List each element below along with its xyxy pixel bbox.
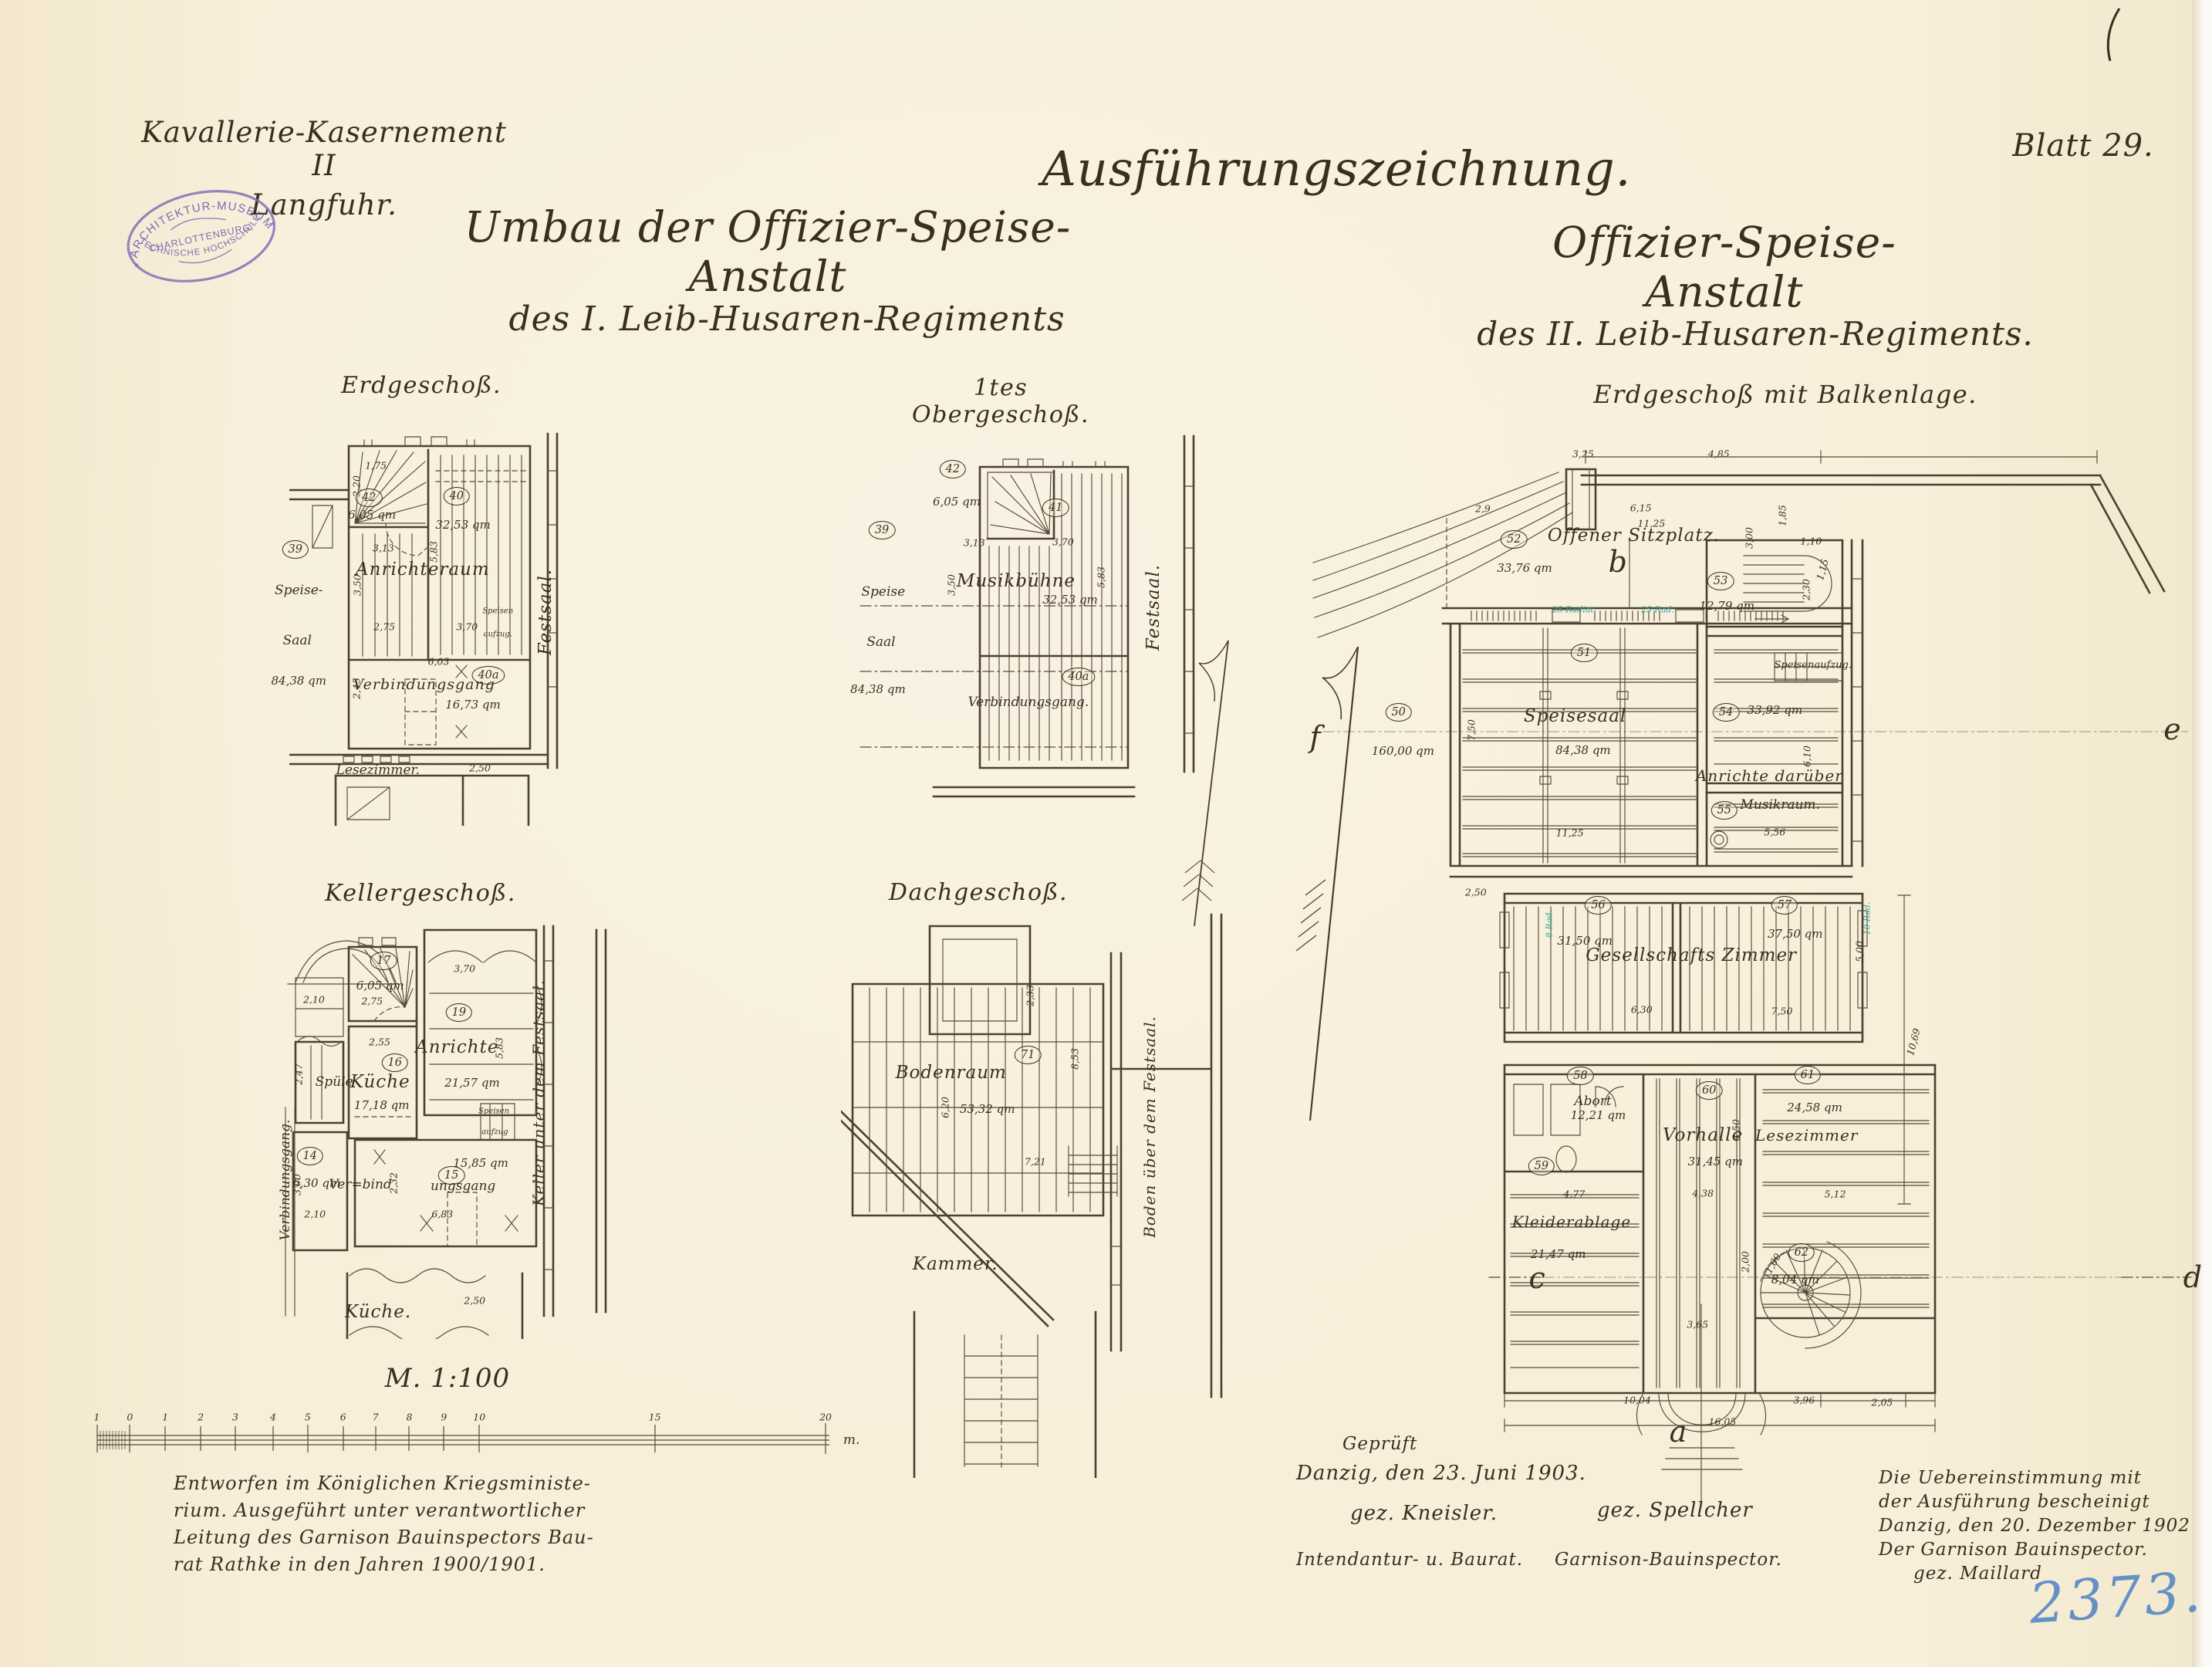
plan-label: Speisesaal	[1524, 706, 1626, 726]
project-title-right-line2: des II. Leib-Husaren-Regiments.	[1458, 315, 2052, 353]
scale-bar: 10123456789101520m.	[77, 1366, 864, 1459]
dimension-label: 3,25	[1572, 448, 1594, 460]
dimension-label: 20	[819, 1412, 832, 1423]
dimension-label: 2,75	[361, 996, 383, 1007]
dimension-label: 4,38	[1692, 1187, 1714, 1199]
dimension-label: 5,83	[494, 1037, 505, 1059]
room-number: 55	[1711, 801, 1738, 820]
dimension-label: 2,00	[1740, 1251, 1751, 1273]
plan-label: Keller unter dem Festsaal.	[529, 979, 548, 1206]
dimension-label: 4,50	[1730, 1119, 1741, 1141]
note-designed-line: Entworfen im Königlichen Kriegsministe-	[174, 1470, 575, 1497]
plan-label: Verbindungsgang.	[968, 695, 1089, 710]
dimension-label: 4	[270, 1412, 276, 1423]
checked-heading: Geprüft	[1342, 1434, 1417, 1454]
room-number: 59	[1528, 1157, 1555, 1175]
floor-plan-dachgeschoss-labels: 71Bodenraum2,338,536,2053,32 qm7,21Boden…	[841, 884, 1312, 1478]
dimension-label: 4,85	[1708, 448, 1730, 460]
room-number: 41	[1042, 499, 1069, 517]
plan-label: 6,05 qm	[933, 495, 981, 509]
plan-label: 84,38 qm	[271, 674, 326, 688]
dimension-label: 10,04	[1623, 1395, 1651, 1406]
plan-label: Verbindungsgang	[353, 676, 495, 693]
room-number: 51	[1571, 644, 1597, 662]
plan-label: Lesezimmer.	[336, 762, 420, 778]
room-number: 19	[446, 1003, 472, 1022]
dimension-label: 2,50	[469, 762, 491, 774]
project-title-right-line1: Offizier-Speise-Anstalt	[1489, 218, 1960, 316]
plan-label: Lesezimmer	[1755, 1126, 1858, 1145]
dimension-label: 8	[406, 1412, 412, 1423]
floor-plan-dachgeschoss: 71Bodenraum2,338,536,2053,32 qm7,21Boden…	[841, 884, 1312, 1478]
site-line1: Kavallerie-Kasernement II	[131, 116, 517, 182]
plan-label: d	[2183, 1260, 2202, 1294]
plan-label: Speise	[861, 584, 905, 600]
plan-label: Festsaal.	[535, 569, 556, 655]
dimension-label: 11,25	[1556, 827, 1584, 839]
plan-label: Gesellschafts Zimmer	[1586, 945, 1797, 965]
dimension-label: 3,70	[456, 620, 478, 632]
plan-label: Musikraum.	[1740, 797, 1820, 813]
plan-label: Küche.	[345, 1302, 411, 1322]
dimension-label: 2,50	[1465, 887, 1487, 898]
floor-plan-kellergeschoss-labels: 176,05 qm2,752,103,7019Anrichte21,57 qm5…	[282, 884, 787, 1339]
dimension-label: 3,00	[1743, 527, 1754, 549]
dimension-label: 6,10	[1801, 746, 1812, 767]
room-number: 52	[1501, 530, 1527, 549]
plan-label: 32,53 qm	[1042, 593, 1098, 607]
dimension-label: 3,50	[946, 574, 957, 596]
dimension-label: 10	[473, 1412, 485, 1423]
dimension-label: 5,56	[1764, 827, 1785, 838]
plan-label: 6,05 qm	[356, 979, 404, 992]
plan-label: Boden über dem Festsaal.	[1140, 1016, 1159, 1238]
dimension-label: 2,10	[303, 993, 325, 1005]
dimension-label: 5	[305, 1412, 311, 1423]
room-number: 60	[1696, 1081, 1722, 1100]
note-designed-line: rium. Ausgeführt unter verantwortlicher	[174, 1497, 575, 1524]
dimension-label: 8,53	[1069, 1048, 1081, 1070]
dimension-label: 2,10	[304, 1208, 326, 1219]
room-number: 42	[940, 460, 966, 478]
dimension-label: 1,75	[365, 460, 387, 472]
room-number: 16	[381, 1053, 407, 1072]
plan-label: Anrichteraum	[356, 560, 490, 580]
dimension-label: 2,75	[373, 620, 395, 632]
dimension-label: 9	[441, 1412, 447, 1423]
dimension-label: 2,05	[1872, 1397, 1893, 1408]
room-number: 42	[356, 489, 382, 507]
note-designed: Entworfen im Königlichen Kriegsministe- …	[174, 1470, 575, 1578]
dimension-label: 10,69	[1904, 1026, 1923, 1056]
drawing-sheet: Kavallerie-Kasernement II Langfuhr. ARCH…	[0, 0, 2212, 1667]
plan-label: Speisen	[478, 1107, 509, 1116]
plan-title-obergeschoss: 1tes Obergeschoß.	[885, 374, 1116, 428]
dimension-label: 3,00	[292, 1174, 303, 1195]
dimension-label: 6,30	[1631, 1003, 1653, 1015]
note-designed-line: Leitung des Garnison Bauinspectors Bau-	[174, 1524, 575, 1551]
plan-label: Festsaal.	[1143, 564, 1163, 651]
plan-label: Speisenaufzug.	[1775, 660, 1852, 671]
plan-label: m.	[843, 1432, 860, 1448]
drawing-type-title: Ausführungszeichnung.	[1042, 140, 1613, 197]
checked-signature-left: gez. Kneisler.	[1350, 1502, 1498, 1525]
sheet-number: Blatt 29.	[1998, 128, 2168, 164]
floor-plan-balkenlage: 52Offener Sitzplatz.33,76 qm3,254,856,15…	[1312, 432, 2199, 1513]
dimension-label: 2,32	[387, 1172, 399, 1194]
room-number: 62	[1788, 1243, 1815, 1262]
dimension-label: 7,21	[1025, 1156, 1046, 1168]
room-number: 17	[370, 952, 397, 970]
note-checked: Geprüft Danzig, den 23. Juni 1903. gez. …	[1296, 1434, 1821, 1604]
plan-label: Kammer.	[913, 1254, 998, 1274]
dimension-label: 3,70	[1052, 536, 1074, 548]
plan-label: 160,00 qm	[1372, 744, 1434, 758]
floor-plan-kellergeschoss: 176,05 qm2,752,103,7019Anrichte21,57 qm5…	[282, 884, 787, 1339]
dimension-label: 6,20	[939, 1097, 951, 1118]
room-number: 58	[1567, 1067, 1593, 1085]
dimension-label: 6,15	[1630, 502, 1652, 514]
scale-bar-labels: 10123456789101520m.	[77, 1366, 864, 1459]
plan-label: Speise-	[275, 583, 323, 598]
plan-title-balkenlage: Erdgeschoß mit Balkenlage.	[1554, 380, 2017, 409]
dimension-label: 6,83	[431, 1208, 453, 1219]
plan-label: c	[1528, 1261, 1545, 1295]
checked-role-right: Garnison-Bauinspector.	[1555, 1550, 1782, 1570]
dimension-label: 6	[340, 1412, 346, 1423]
room-number: 40	[443, 487, 469, 506]
room-number: 54	[1713, 703, 1739, 722]
plan-label: 24,58 qm	[1787, 1101, 1842, 1114]
dimension-label: 16,05	[1709, 1416, 1737, 1428]
plan-label: ungsgang	[431, 1178, 495, 1194]
plan-label: 25 Rad.	[1641, 604, 1674, 614]
plan-label: Abort	[1574, 1094, 1611, 1109]
room-number: 61	[1795, 1066, 1821, 1084]
dimension-label: 2,9	[1475, 503, 1491, 515]
dimension-label: 2,30	[1800, 579, 1812, 600]
dimension-label: 1,15	[1815, 557, 1832, 581]
plan-label: 8 Rad.	[1545, 910, 1555, 938]
plan-label: 10 Rad.	[1862, 901, 1872, 935]
plan-label: aufzug	[481, 1128, 508, 1136]
plan-label: Anrichte darüber	[1696, 766, 1843, 785]
room-number: 14	[296, 1147, 323, 1165]
plan-label: e	[2163, 712, 2181, 746]
plan-label: 21,57 qm	[444, 1076, 500, 1090]
plan-label: Offener Sitzplatz.	[1548, 526, 1720, 546]
checked-role-left: Intendantur- u. Baurat.	[1296, 1550, 1523, 1570]
project-title-left-line1: Umbau der Offizier-Speise-Anstalt	[436, 202, 1099, 301]
plan-label: Saal	[283, 633, 312, 648]
plan-label: 32,53 qm	[435, 518, 491, 532]
dimension-label: 0	[127, 1412, 133, 1423]
note-certified-line: Die Uebereinstimmung mit	[1879, 1466, 2210, 1490]
dimension-label: 3,13	[373, 543, 394, 554]
note-certified-line: der Ausführung bescheinigt	[1879, 1490, 2210, 1514]
dimension-label: 2	[198, 1412, 204, 1423]
room-number: 57	[1771, 896, 1798, 915]
plan-label: 31,45 qm	[1687, 1155, 1743, 1168]
dimension-label: 1,10	[1801, 536, 1822, 547]
note-certified-line: Danzig, den 20. Dezember 1902	[1879, 1514, 2210, 1538]
plan-label: 84,38 qm	[850, 682, 906, 696]
dimension-label: 2,50	[464, 1294, 485, 1306]
dimension-label: 3	[232, 1412, 238, 1423]
plan-label: Verbindungsgang.	[278, 1119, 293, 1240]
floor-plan-erdgeschoss: 1,752,20426,05 qm4032,53 qm3,135,8339Anr…	[289, 424, 787, 826]
plan-title-erdgeschoss: Erdgeschoß.	[306, 372, 537, 399]
plan-label: Bodenraum	[896, 1063, 1007, 1083]
dimension-label: 7,50	[1466, 719, 1477, 741]
dimension-label: 3,70	[454, 962, 475, 974]
dimension-label: 2,45	[351, 678, 363, 699]
floor-plan-erdgeschoss-labels: 1,752,20426,05 qm4032,53 qm3,135,8339Anr…	[289, 424, 787, 826]
plan-label: 84,38 qm	[1555, 743, 1611, 757]
plan-label: 53,32 qm	[960, 1102, 1015, 1116]
plan-label: 21,47 qm	[1531, 1247, 1586, 1261]
north-arrow-small	[1173, 629, 1250, 938]
dimension-label: 5,12	[1825, 1189, 1846, 1200]
room-number: 53	[1707, 572, 1734, 590]
plan-label: Saal	[866, 634, 895, 650]
note-designed-line: rat Rathke in den Jahren 1900/1901.	[174, 1551, 575, 1578]
checked-place-date: Danzig, den 23. Juni 1903.	[1296, 1462, 1586, 1485]
room-number: 56	[1585, 896, 1611, 915]
dimension-label: 4,77	[1563, 1189, 1585, 1200]
checked-signature-right: gez. Spellcher	[1597, 1499, 1753, 1522]
dimension-label: 5,00	[1853, 941, 1865, 962]
dimension-label: 2,33	[1025, 985, 1036, 1006]
plan-label: Kleiderablage	[1512, 1212, 1631, 1231]
registry-number: 2373.	[2027, 1559, 2205, 1636]
dimension-label: 7	[373, 1412, 379, 1423]
plan-label: 6,05 qm	[348, 508, 396, 522]
room-number: 39	[869, 521, 895, 539]
plan-label: Speisen	[482, 607, 513, 615]
dimension-label: 1	[162, 1412, 168, 1423]
plan-label: 37,50 qm	[1768, 927, 1823, 941]
room-number: 71	[1015, 1046, 1041, 1064]
plan-label: Anrichte	[415, 1037, 498, 1057]
dimension-label: 3,65	[1687, 1319, 1708, 1331]
plan-label: 25 Radiat.	[1552, 604, 1597, 614]
dimension-label: 2,55	[369, 1036, 390, 1047]
corner-ink-mark	[2079, 4, 2133, 66]
dimension-label: 11,25	[1638, 517, 1666, 529]
room-number: 50	[1385, 703, 1411, 722]
plan-label: f	[1310, 720, 1321, 754]
plan-label: Musikbühne	[957, 571, 1076, 591]
dimension-label: 1	[94, 1412, 100, 1423]
dimension-label: 1,85	[1776, 505, 1788, 526]
plan-label: 33,76 qm	[1497, 561, 1552, 575]
plan-label: Ver=bind	[329, 1177, 392, 1192]
note-certified-line: Der Garnison Bauinspector.	[1879, 1538, 2210, 1562]
dimension-label: 5,83	[1095, 566, 1106, 588]
plan-label: 12,21 qm	[1571, 1108, 1626, 1122]
plan-label: 17,18 qm	[354, 1098, 410, 1112]
plan-label: 16,73 qm	[445, 698, 501, 712]
plan-label: 8,04 qm	[1771, 1273, 1819, 1287]
project-title-left-line2: des I. Leib-Husaren-Regiments	[455, 299, 1119, 339]
dimension-label: 3,50	[352, 574, 363, 596]
dimension-label: 3,13	[964, 537, 985, 549]
dimension-label: 3,96	[1793, 1395, 1815, 1406]
dimension-label: 6,03	[428, 655, 450, 667]
plan-label: 12,79 qm	[1699, 599, 1754, 613]
plan-label: 15,85 qm	[453, 1156, 508, 1170]
plan-label: aufzug.	[484, 630, 512, 638]
room-number: 39	[282, 540, 309, 559]
dimension-label: 15	[649, 1412, 661, 1423]
plan-label: 33,92 qm	[1748, 703, 1803, 717]
plan-label: b	[1609, 545, 1627, 579]
dimension-label: 2,47	[293, 1063, 305, 1085]
plan-label: Spüle	[316, 1074, 353, 1090]
room-number: 40a	[1062, 668, 1095, 686]
plan-label: Küche	[350, 1072, 410, 1092]
dimension-label: 7,50	[1771, 1006, 1793, 1017]
floor-plan-balkenlage-labels: 52Offener Sitzplatz.33,76 qm3,254,856,15…	[1312, 432, 2199, 1513]
